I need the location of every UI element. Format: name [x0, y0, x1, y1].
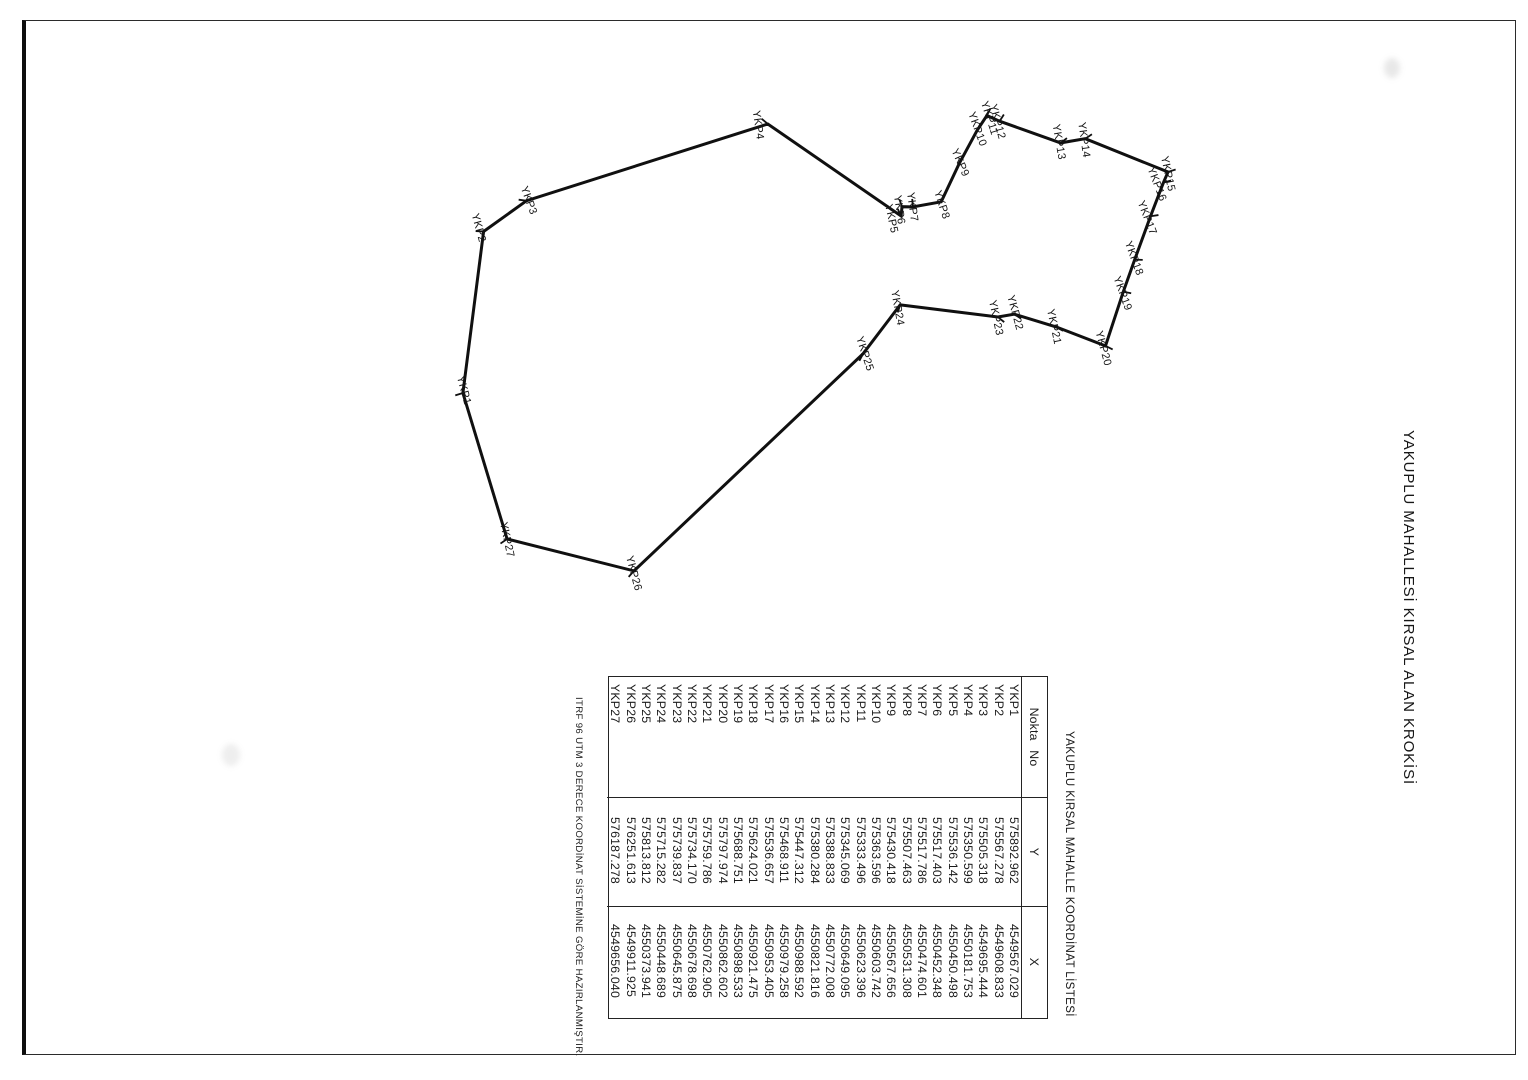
cell-nokta-no: YKP4	[960, 677, 975, 798]
cell-y: 575734.170	[684, 798, 699, 907]
cell-x: 4550181.753	[960, 907, 975, 1017]
cell-y: 575345.069	[837, 798, 852, 907]
cell-y: 575505.318	[975, 798, 990, 907]
table-row: YKP26576251.6134549911.925	[622, 677, 637, 1018]
cell-x: 4550762.905	[699, 907, 714, 1017]
cell-nokta-no: YKP16	[776, 677, 791, 798]
cell-x: 4549695.444	[975, 907, 990, 1017]
cell-y: 575507.463	[898, 798, 913, 907]
cell-y: 575363.596	[868, 798, 883, 907]
coordinate-table: Nokta No Y X YKP1575892.9624549567.029YK…	[608, 676, 1048, 1019]
cell-nokta-no: YKP24	[653, 677, 668, 798]
cell-x: 4550898.533	[730, 907, 745, 1017]
cell-x: 4550921.475	[745, 907, 760, 1017]
table-row: YKP1575892.9624549567.029	[1006, 677, 1021, 1018]
cell-nokta-no: YKP6	[929, 677, 944, 798]
cell-nokta-no: YKP8	[898, 677, 913, 798]
table-row: YKP23575739.8374550645.875	[668, 677, 683, 1018]
table-row: YKP19575688.7514550898.533	[730, 677, 745, 1018]
cell-y: 575380.284	[806, 798, 821, 907]
cell-y: 575517.403	[929, 798, 944, 907]
cell-nokta-no: YKP25	[638, 677, 653, 798]
point-label: YKP23	[986, 299, 1005, 336]
cell-x: 4549656.040	[607, 907, 622, 1017]
cell-y: 575536.142	[944, 798, 959, 907]
cell-nokta-no: YKP7	[914, 677, 929, 798]
header-y: Y	[1022, 798, 1047, 907]
table-row: YKP6575517.4034550452.348	[929, 677, 944, 1018]
cell-nokta-no: YKP2	[990, 677, 1005, 798]
table-row: YKP12575345.0694550649.095	[837, 677, 852, 1018]
cell-nokta-no: YKP18	[745, 677, 760, 798]
point-label: YKP13	[1050, 123, 1068, 160]
cell-x: 4550531.308	[898, 907, 913, 1017]
cell-nokta-no: YKP23	[668, 677, 683, 798]
coordinate-table-title: YAKUPLU KIRSAL MAHALLE KOORDİNAT LİSTESİ	[1063, 731, 1075, 1017]
cell-y: 576251.613	[622, 798, 637, 907]
point-label: YKP14	[1075, 121, 1092, 158]
point-label: YKP4	[750, 110, 766, 141]
cell-x: 4550567.656	[883, 907, 898, 1017]
cell-y: 575430.418	[883, 798, 898, 907]
cell-y: 575688.751	[730, 798, 745, 907]
point-label: YKP8	[931, 189, 951, 221]
table-row: YKP4575350.5994550181.753	[960, 677, 975, 1018]
point-label: YKP21	[1044, 308, 1063, 345]
table-row: YKP2575567.2784549608.833	[990, 677, 1005, 1018]
cell-x: 4550452.348	[929, 907, 944, 1017]
cell-x: 4550603.742	[868, 907, 883, 1017]
cell-x: 4550772.008	[822, 907, 837, 1017]
point-label: YKP26	[623, 555, 644, 593]
cell-nokta-no: YKP17	[760, 677, 775, 798]
cell-y: 575759.786	[699, 798, 714, 907]
point-label: YKP9	[948, 147, 971, 179]
cell-y: 575739.837	[668, 798, 683, 907]
cell-x: 4550862.602	[714, 907, 729, 1017]
table-row: YKP22575734.1704550678.698	[684, 677, 699, 1018]
scanned-sheet: YAKUPLU MAHALLESİ KIRSAL ALAN KROKİSİ YK…	[0, 0, 1528, 1080]
cell-x: 4550953.405	[760, 907, 775, 1017]
cell-nokta-no: YKP20	[714, 677, 729, 798]
point-label: YKP1	[454, 375, 473, 406]
point-label: YKP2	[469, 212, 488, 243]
cell-nokta-no: YKP27	[607, 677, 622, 798]
table-row: YKP8575507.4634550531.308	[898, 677, 913, 1018]
table-row: YKP21575759.7864550762.905	[699, 677, 714, 1018]
cell-y: 575567.278	[990, 798, 1005, 907]
point-label: YKP24	[888, 289, 906, 326]
cell-y: 575892.962	[1006, 798, 1021, 907]
cell-y: 575517.786	[914, 798, 929, 907]
cell-nokta-no: YKP11	[852, 677, 867, 798]
cell-x: 4550474.601	[914, 907, 929, 1017]
table-row: YKP24575715.2824550448.689	[653, 677, 668, 1018]
portrait-page: YAKUPLU MAHALLESİ KIRSAL ALAN KROKİSİ YK…	[0, 0, 1528, 1080]
datum-note: ITRF 96 UTM 3 DERECE KOORDİNAT SİSTEMİNE…	[573, 697, 584, 1056]
table-row: YKP16575468.9114550979.258	[776, 677, 791, 1018]
cell-nokta-no: YKP9	[883, 677, 898, 798]
table-row: YKP17575536.6574550953.405	[760, 677, 775, 1018]
cell-nokta-no: YKP10	[868, 677, 883, 798]
cell-nokta-no: YKP5	[944, 677, 959, 798]
cell-y: 575333.496	[852, 798, 867, 907]
cell-y: 576187.278	[607, 798, 622, 907]
cell-x: 4549911.925	[622, 907, 637, 1017]
header-nokta-no: Nokta No	[1022, 677, 1047, 798]
cell-y: 575813.812	[638, 798, 653, 907]
table-row: YKP14575380.2844550821.816	[806, 677, 821, 1018]
cell-x: 4550450.498	[944, 907, 959, 1017]
table-row: YKP5575536.1424550450.498	[944, 677, 959, 1018]
cell-x: 4550649.095	[837, 907, 852, 1017]
cell-x: 4550821.816	[806, 907, 821, 1017]
table-row: YKP25575813.8124550373.941	[638, 677, 653, 1018]
cell-nokta-no: YKP15	[791, 677, 806, 798]
cell-y: 575447.312	[791, 798, 806, 907]
point-label: YKP22	[1004, 294, 1025, 332]
cell-nokta-no: YKP26	[622, 677, 637, 798]
cell-x: 4549608.833	[990, 907, 1005, 1017]
table-row: YKP11575333.4964550623.396	[852, 677, 867, 1018]
cell-nokta-no: YKP12	[837, 677, 852, 798]
cell-y: 575715.282	[653, 798, 668, 907]
cell-x: 4550623.396	[852, 907, 867, 1017]
point-label: YKP27	[497, 521, 516, 558]
cell-x: 4549567.029	[1006, 907, 1021, 1017]
cell-nokta-no: YKP21	[699, 677, 714, 798]
cell-nokta-no: YKP3	[975, 677, 990, 798]
coordinate-table-header: Nokta No Y X	[1021, 677, 1047, 1018]
cell-x: 4550988.592	[791, 907, 806, 1017]
cell-y: 575350.599	[960, 798, 975, 907]
cell-x: 4550645.875	[668, 907, 683, 1017]
cell-nokta-no: YKP13	[822, 677, 837, 798]
header-x: X	[1022, 907, 1047, 1017]
table-row: YKP13575388.8334550772.008	[822, 677, 837, 1018]
table-row: YKP9575430.4184550567.656	[883, 677, 898, 1018]
cell-nokta-no: YKP14	[806, 677, 821, 798]
cell-nokta-no: YKP19	[730, 677, 745, 798]
table-row: YKP20575797.9744550862.602	[714, 677, 729, 1018]
table-row: YKP18575624.0214550921.475	[745, 677, 760, 1018]
cell-y: 575797.974	[714, 798, 729, 907]
cell-x: 4550678.698	[684, 907, 699, 1017]
cell-y: 575624.021	[745, 798, 760, 907]
coordinate-table-body: YKP1575892.9624549567.029YKP2575567.2784…	[607, 677, 1021, 1018]
cell-nokta-no: YKP1	[1006, 677, 1021, 798]
cell-x: 4550448.689	[653, 907, 668, 1017]
cell-nokta-no: YKP22	[684, 677, 699, 798]
cell-y: 575388.833	[822, 798, 837, 907]
table-row: YKP7575517.7864550474.601	[914, 677, 929, 1018]
table-row: YKP3575505.3184549695.444	[975, 677, 990, 1018]
table-row: YKP15575447.3124550988.592	[791, 677, 806, 1018]
cell-x: 4550373.941	[638, 907, 653, 1017]
cell-x: 4550979.258	[776, 907, 791, 1017]
cell-y: 575536.657	[760, 798, 775, 907]
table-row: YKP27576187.2784549656.040	[607, 677, 622, 1018]
table-row: YKP10575363.5964550603.742	[868, 677, 883, 1018]
cell-y: 575468.911	[776, 798, 791, 907]
point-label: YKP18	[1122, 240, 1146, 278]
